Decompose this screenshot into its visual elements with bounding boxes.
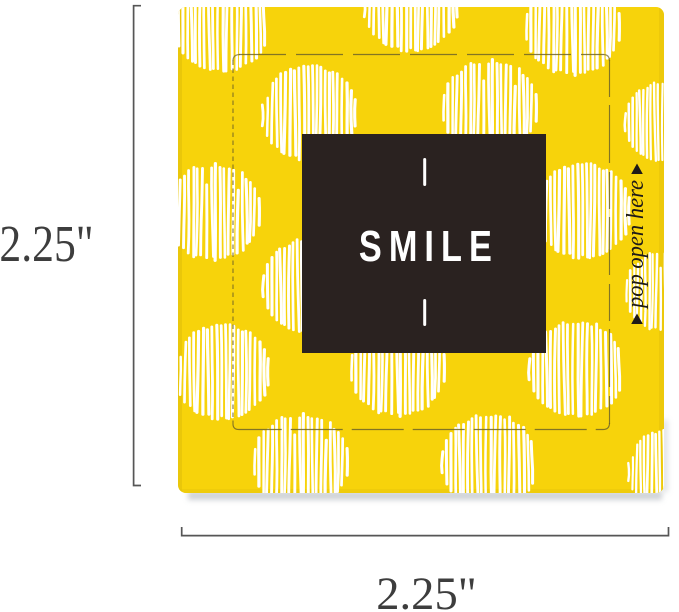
svg-text:2.25": 2.25" [0, 216, 94, 273]
svg-text:pop open here: pop open here [623, 180, 649, 310]
svg-text:SMILE: SMILE [359, 222, 499, 271]
svg-text:2.25": 2.25" [376, 568, 476, 612]
